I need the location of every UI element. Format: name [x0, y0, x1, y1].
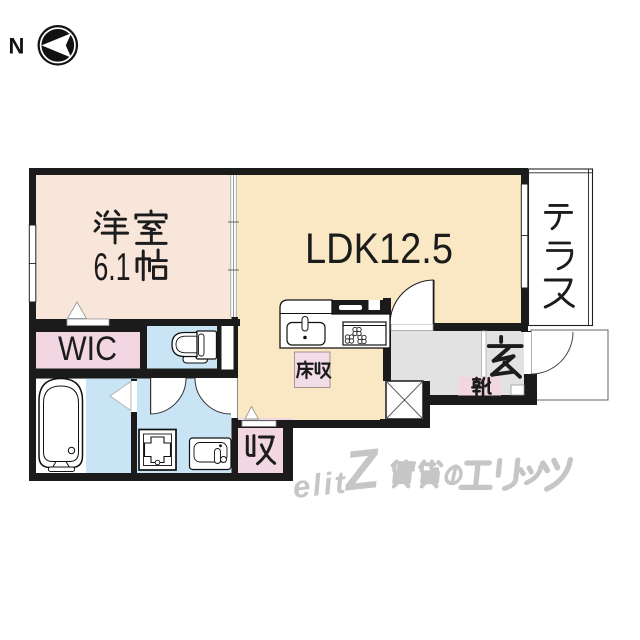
svg-text:WIC: WIC — [58, 330, 117, 368]
svg-text:6.1: 6.1 — [94, 246, 131, 289]
svg-text:LDK12.5: LDK12.5 — [305, 225, 453, 273]
svg-text:Z: Z — [339, 436, 383, 503]
svg-text:elit: elit — [291, 464, 349, 505]
svg-text:N: N — [9, 34, 25, 59]
